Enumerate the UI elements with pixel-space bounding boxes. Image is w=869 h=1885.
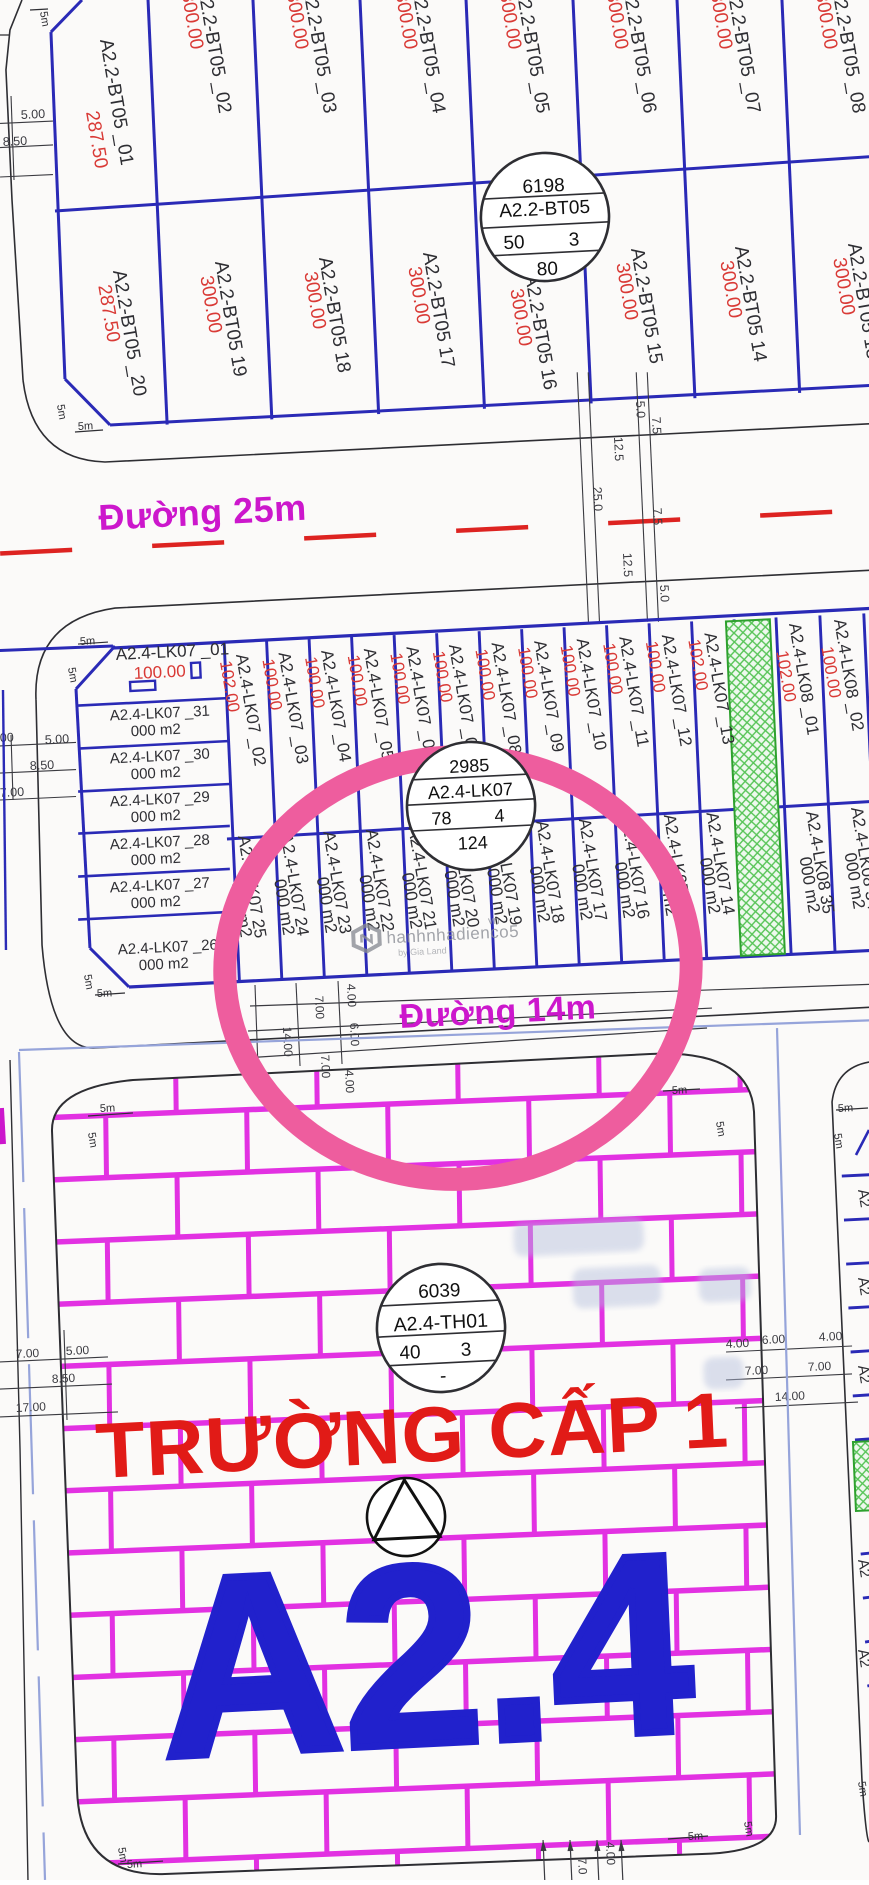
svg-text:5.00: 5.00 xyxy=(20,107,45,122)
svg-text:40: 40 xyxy=(399,1342,421,1364)
svg-text:3: 3 xyxy=(460,1340,472,1362)
svg-text:5m: 5m xyxy=(713,1120,727,1137)
svg-text:5m: 5m xyxy=(127,1858,143,1871)
svg-text:8.50: 8.50 xyxy=(52,1371,76,1386)
svg-text:100.00: 100.00 xyxy=(133,661,186,683)
svg-text:5m: 5m xyxy=(81,973,95,990)
svg-text:3: 3 xyxy=(568,229,580,251)
svg-text:5.00: 5.00 xyxy=(45,732,70,747)
svg-text:4.00: 4.00 xyxy=(725,1336,749,1351)
svg-text:5m: 5m xyxy=(65,666,79,683)
svg-text:6039: 6039 xyxy=(418,1280,461,1303)
svg-text:A2.4-LK07: A2.4-LK07 xyxy=(427,779,513,803)
svg-text:7.00: 7.00 xyxy=(312,995,327,1019)
svg-text:000 m2: 000 m2 xyxy=(138,955,189,974)
svg-text:5m: 5m xyxy=(831,1132,845,1149)
svg-text:5m: 5m xyxy=(100,1102,116,1115)
svg-text:7.00: 7.00 xyxy=(318,1055,333,1079)
svg-text:12.5: 12.5 xyxy=(620,552,635,577)
svg-text:6.00: 6.00 xyxy=(761,1332,785,1347)
svg-text:14.00: 14.00 xyxy=(775,1388,806,1404)
svg-text:4.00: 4.00 xyxy=(819,1329,843,1344)
svg-text:80: 80 xyxy=(536,258,558,280)
svg-text:000 m2: 000 m2 xyxy=(130,850,181,869)
svg-text:000 m2: 000 m2 xyxy=(130,807,181,826)
svg-text:7.5: 7.5 xyxy=(649,416,664,434)
svg-text:50: 50 xyxy=(503,232,525,254)
svg-text:4.00: 4.00 xyxy=(342,1069,357,1093)
svg-text:000 m2: 000 m2 xyxy=(130,721,181,740)
svg-text:vn: vn xyxy=(488,915,500,928)
svg-text:5.00: 5.00 xyxy=(65,1343,89,1358)
svg-text:124: 124 xyxy=(457,832,488,853)
svg-text:17.00: 17.00 xyxy=(16,1399,47,1415)
svg-text:8.50: 8.50 xyxy=(30,758,55,773)
svg-text:5m: 5m xyxy=(37,10,51,27)
svg-text:-: - xyxy=(440,1366,447,1387)
svg-text:2985: 2985 xyxy=(449,755,490,777)
svg-text:00: 00 xyxy=(0,730,14,745)
svg-text:7.0: 7.0 xyxy=(575,1857,590,1875)
svg-text:A2.4: A2.4 xyxy=(154,1499,698,1812)
svg-text:000 m2: 000 m2 xyxy=(130,893,181,912)
svg-text:4.00: 4.00 xyxy=(344,983,359,1007)
svg-text:78: 78 xyxy=(431,808,452,829)
svg-text:5.0: 5.0 xyxy=(633,400,648,418)
svg-text:4: 4 xyxy=(494,805,505,825)
svg-text:7.00: 7.00 xyxy=(16,1346,40,1361)
svg-text:14.00: 14.00 xyxy=(280,1026,295,1057)
svg-text:7.00: 7.00 xyxy=(807,1359,831,1374)
svg-text:7.00: 7.00 xyxy=(745,1363,769,1378)
svg-text:7.5: 7.5 xyxy=(650,507,665,525)
svg-text:8.50: 8.50 xyxy=(2,134,27,149)
svg-text:12.5: 12.5 xyxy=(611,436,626,461)
svg-text:5m: 5m xyxy=(54,403,68,420)
svg-text:25.0: 25.0 xyxy=(590,486,605,511)
svg-text:5m: 5m xyxy=(80,635,96,648)
svg-text:5m: 5m xyxy=(85,1132,99,1149)
svg-text:000 m2: 000 m2 xyxy=(130,764,181,783)
svg-text:4.00: 4.00 xyxy=(603,1841,618,1865)
svg-text:6.00: 6.00 xyxy=(347,1022,362,1046)
svg-text:5m: 5m xyxy=(741,1820,755,1837)
svg-text:5.0: 5.0 xyxy=(657,584,672,602)
